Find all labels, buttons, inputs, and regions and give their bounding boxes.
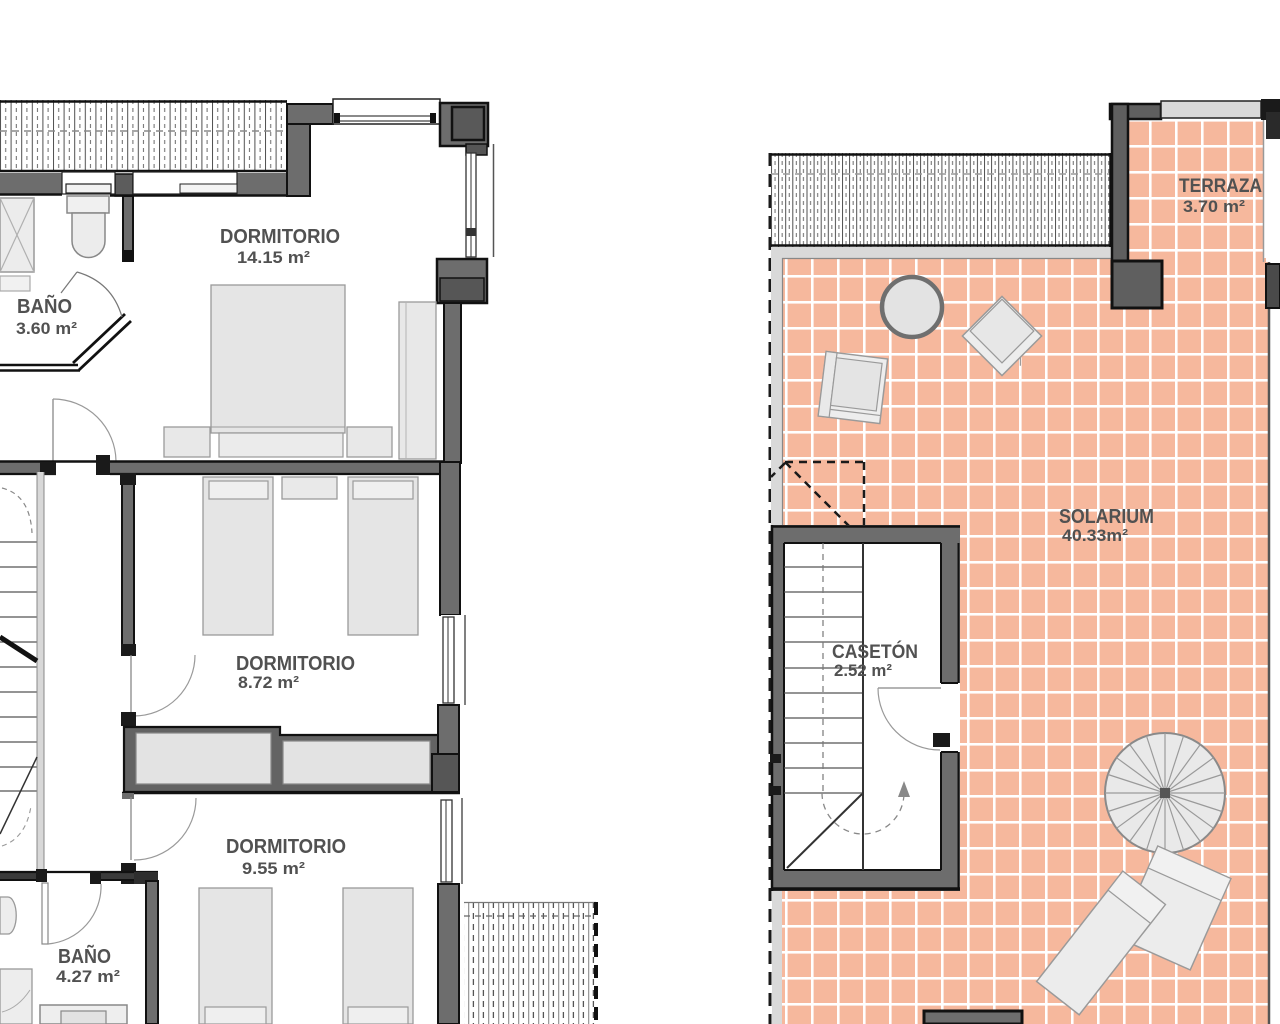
svg-text:2.52 m²: 2.52 m²	[834, 661, 892, 680]
svg-text:DORMITORIO: DORMITORIO	[220, 226, 340, 248]
svg-text:BAÑO: BAÑO	[58, 945, 111, 968]
svg-text:3.60 m²: 3.60 m²	[16, 319, 77, 338]
svg-text:8.72 m²: 8.72 m²	[238, 673, 299, 692]
svg-text:BAÑO: BAÑO	[17, 295, 72, 318]
svg-text:DORMITORIO: DORMITORIO	[226, 836, 346, 858]
svg-text:4.27 m²: 4.27 m²	[56, 967, 120, 986]
svg-text:40.33m²: 40.33m²	[1062, 526, 1128, 545]
svg-text:SOLARIUM: SOLARIUM	[1059, 506, 1154, 528]
svg-text:DORMITORIO: DORMITORIO	[236, 653, 355, 675]
svg-text:CASETÓN: CASETÓN	[832, 641, 918, 663]
svg-text:14.15 m²: 14.15 m²	[237, 248, 310, 267]
svg-text:3.70 m²: 3.70 m²	[1183, 197, 1245, 216]
svg-text:9.55 m²: 9.55 m²	[242, 859, 305, 878]
svg-text:TERRAZA: TERRAZA	[1179, 176, 1262, 197]
